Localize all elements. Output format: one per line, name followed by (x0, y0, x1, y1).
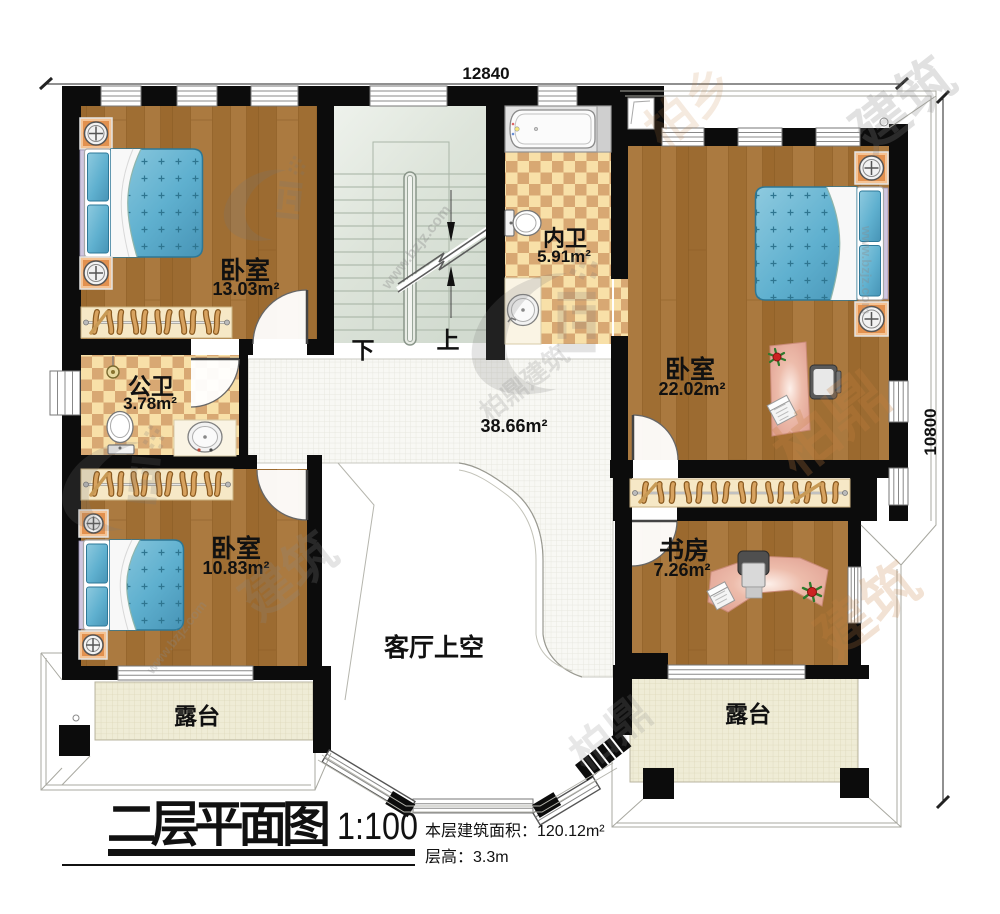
svg-text:客厅上空: 客厅上空 (384, 633, 484, 662)
svg-text:露台: 露台 (725, 701, 771, 727)
svg-text:1:100: 1:100 (337, 806, 418, 848)
svg-text:10800: 10800 (921, 408, 940, 455)
svg-text:12840: 12840 (462, 64, 509, 83)
svg-text:下: 下 (352, 337, 375, 363)
svg-text:www.bzjz.com: www.bzjz.com (859, 225, 874, 314)
svg-text:7.26m²: 7.26m² (653, 560, 710, 580)
svg-text:上: 上 (437, 327, 460, 353)
svg-text:露台: 露台 (174, 703, 220, 729)
svg-text:13.03m²: 13.03m² (212, 279, 279, 299)
svg-text:层高：3.3m: 层高：3.3m (425, 848, 509, 866)
svg-text:二层平面图: 二层平面图 (107, 798, 331, 852)
svg-text:3.78m²: 3.78m² (123, 394, 177, 413)
svg-text:本层建筑面积：120.12m²: 本层建筑面积：120.12m² (425, 822, 605, 840)
svg-text:22.02m²: 22.02m² (658, 379, 725, 399)
